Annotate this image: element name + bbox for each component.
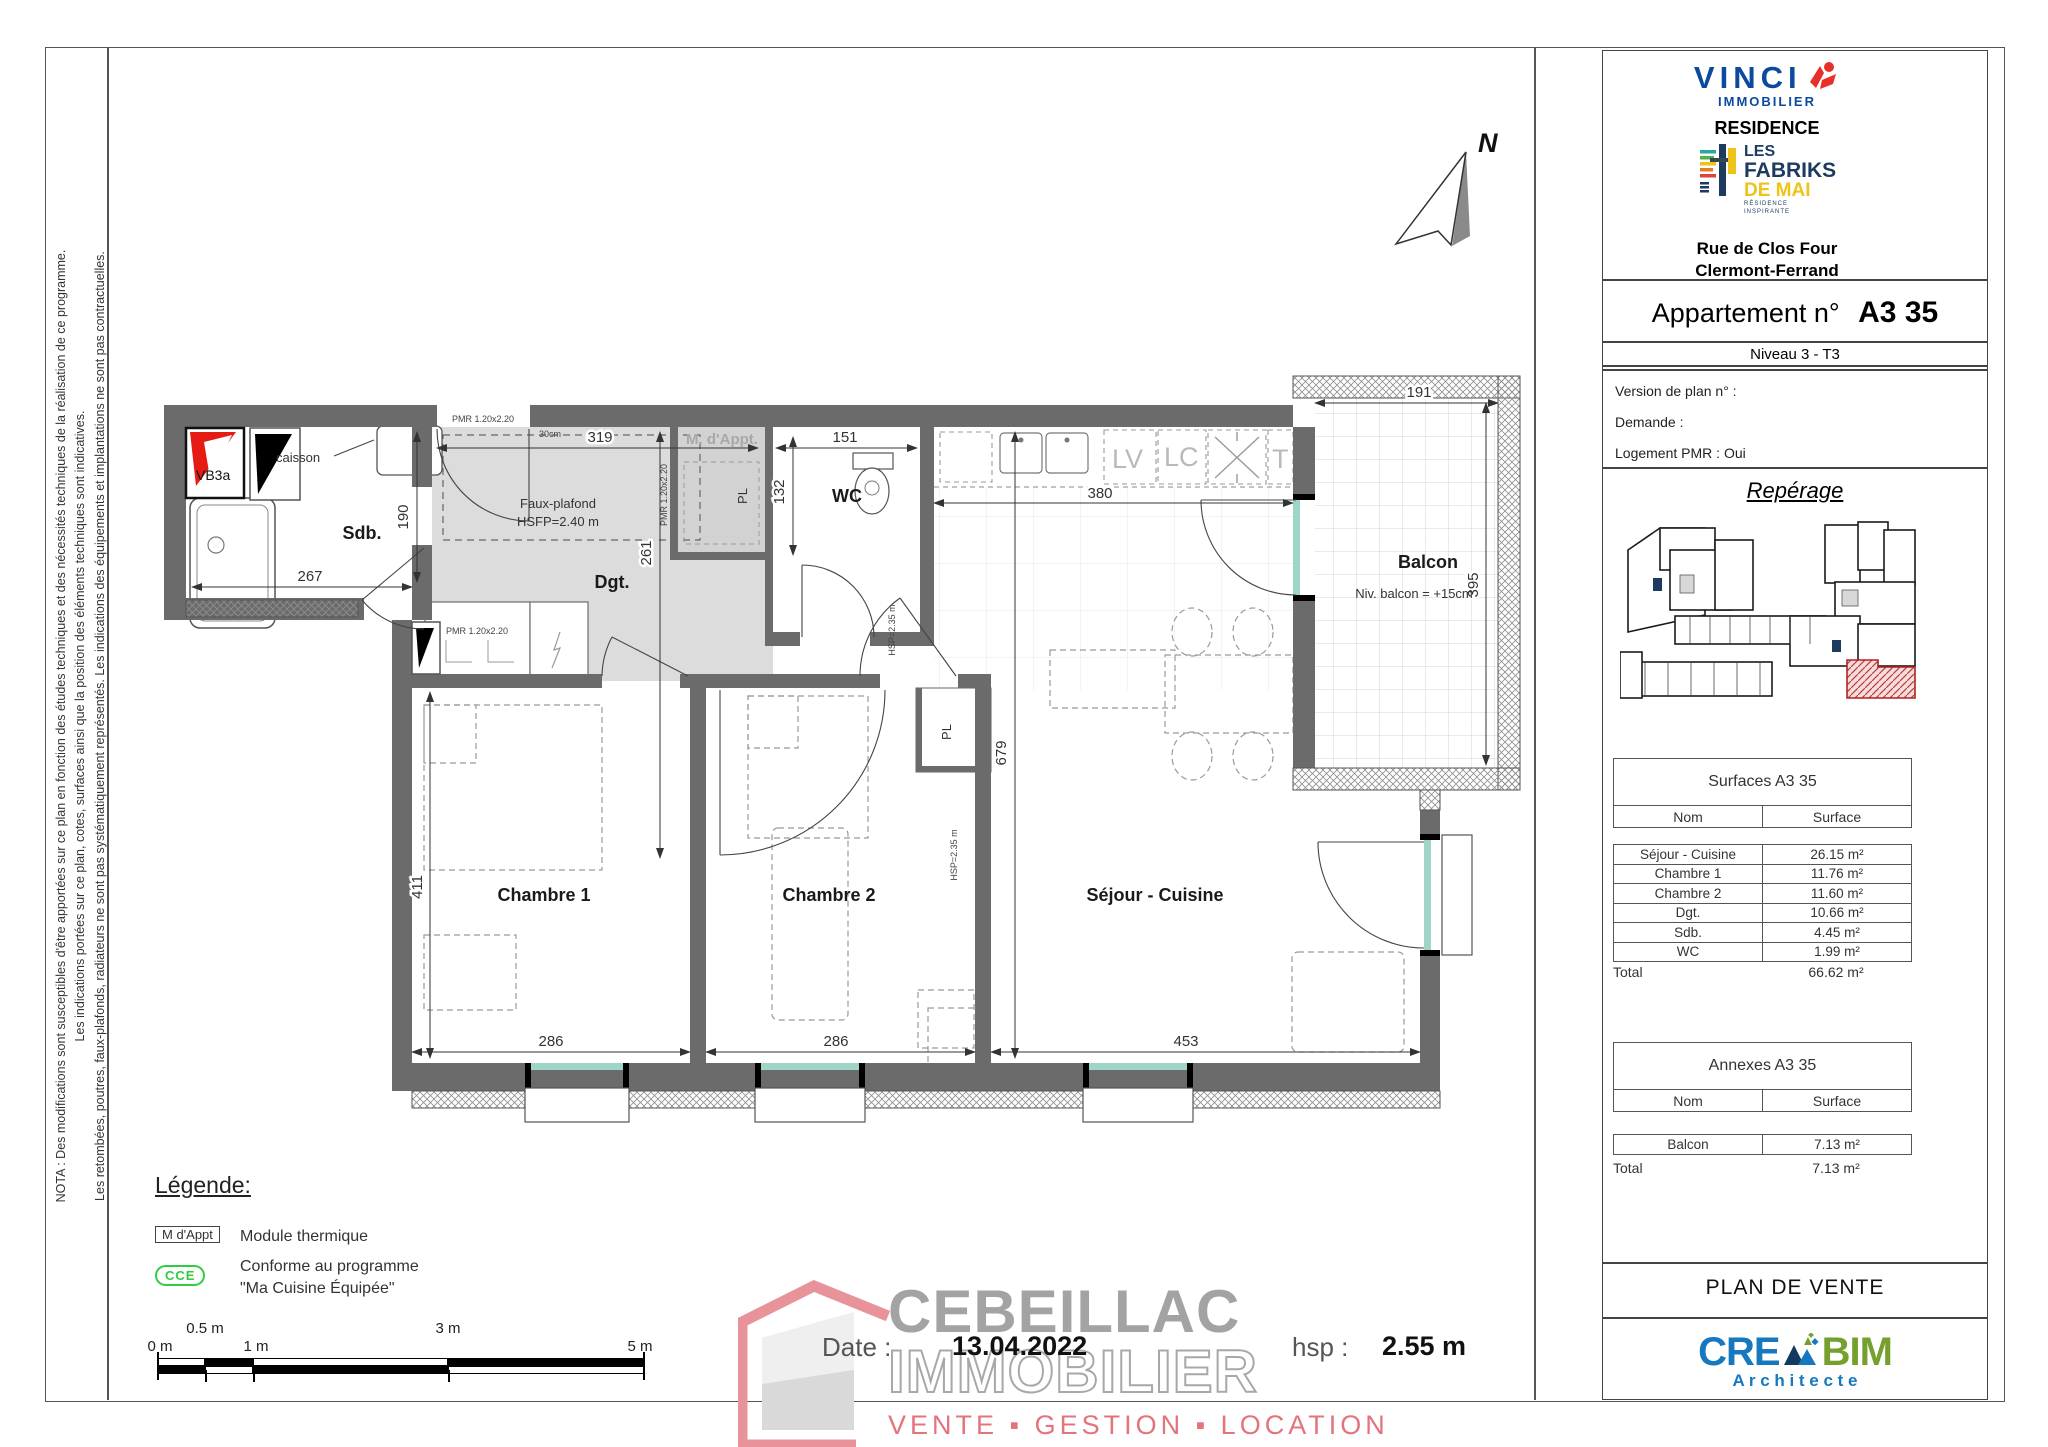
fabriks-sub2: INSPIRANTE — [1744, 208, 1836, 216]
date-value: 13.04.2022 — [952, 1331, 1087, 1362]
reperage-title: Repérage — [1602, 478, 1988, 504]
surfaces-total-value: 66.62 m² — [1762, 964, 1910, 980]
vb3a-label: VB3a — [196, 467, 230, 483]
surfaces-table-body: Séjour - Cuisine26.15 m² Chambre 111.76 … — [1613, 844, 1912, 962]
vinci-sub-label: IMMOBILIER — [1602, 94, 1932, 109]
room-chambre1: Chambre 1 — [497, 885, 590, 905]
cell-nom: Dgt. — [1614, 904, 1763, 923]
table-row: Sdb.4.45 m² — [1614, 923, 1911, 943]
annexes-total-label: Total — [1613, 1160, 1643, 1176]
dim-286b: 286 — [823, 1033, 848, 1050]
dim-151: 151 — [832, 429, 857, 446]
cell-nom: WC — [1614, 943, 1763, 962]
demande-label: Demande : — [1615, 414, 1683, 430]
entry-closets — [425, 602, 588, 681]
note-pmr-module: PMR 1.20x2.20 — [659, 464, 669, 526]
room-chambre2: Chambre 2 — [782, 885, 875, 905]
dim-453: 453 — [1173, 1033, 1198, 1050]
kitchen-counter: LV LC T — [934, 430, 1293, 487]
cell-surface: 11.60 m² — [1763, 884, 1911, 903]
divider — [1602, 1262, 1988, 1264]
residence-label: RESIDENCE — [1602, 118, 1932, 139]
vinci-logo: VINCI IMMOBILIER — [1602, 60, 1932, 109]
scale-0: 0 m — [147, 1338, 172, 1355]
cce-label-line1: Conforme au programme — [240, 1256, 419, 1278]
kitchen-t-label: T — [1272, 444, 1289, 474]
room-balcon: Balcon — [1398, 552, 1458, 572]
level-label: Niveau 3 - T3 — [1602, 346, 1988, 363]
hsp-label: hsp : — [1292, 1332, 1348, 1363]
table-row: Dgt.10.66 m² — [1614, 904, 1911, 924]
table-row: Séjour - Cuisine26.15 m² — [1614, 845, 1911, 865]
cce-symbol-text: CCE — [165, 1268, 195, 1283]
note-30cm: 30cm — [539, 429, 561, 439]
note-fauxplafond-2: HSFP=2.40 m — [517, 514, 599, 529]
fabriks-les: LES — [1744, 144, 1836, 160]
divider — [1602, 279, 1988, 281]
version-label: Version de plan n° : — [1615, 383, 1737, 399]
dim-190: 190 — [395, 504, 412, 529]
room-sdb: Sdb. — [343, 523, 382, 543]
creabim-cre: CRE — [1698, 1330, 1779, 1374]
note-hsp-b: HSP=2.35 m — [949, 829, 959, 880]
dim-380: 380 — [1087, 485, 1112, 502]
module-thermique-label: Module thermique — [240, 1228, 368, 1246]
dim-319: 319 — [587, 429, 612, 446]
fabriks-logo: LES FABRIKS DE MAI RÉSIDENCE INSPIRANTE — [1700, 144, 1900, 217]
cebeillac-tagline: VENTE ▪ GESTION ▪ LOCATION — [888, 1412, 1389, 1439]
cell-surface: 11.76 m² — [1763, 865, 1911, 884]
legend-title: Légende: — [155, 1172, 251, 1199]
cell-nom: Chambre 2 — [1614, 884, 1763, 903]
divider — [1602, 369, 1988, 371]
creabim-sub: A r c h i t e c t e — [1602, 1371, 1988, 1391]
cell-surface: 26.15 m² — [1763, 845, 1911, 864]
cell-surface: 4.45 m² — [1763, 923, 1911, 942]
surfaces-total-label: Total — [1613, 964, 1643, 980]
vinci-symbol-icon — [1806, 60, 1840, 94]
module-symbol-text: M d'Appt — [162, 1227, 213, 1242]
window-wedge-2 — [412, 622, 440, 674]
dim-679: 679 — [993, 740, 1010, 765]
vb3a-box: VB3a — [186, 428, 244, 498]
address-line-1: Rue de Clos Four — [1602, 238, 1932, 260]
dim-286a: 286 — [538, 1033, 563, 1050]
cce-label: Conforme au programme "Ma Cuisine Équipé… — [240, 1256, 419, 1299]
surfaces-title: Surfaces A3 35 — [1614, 759, 1911, 805]
address: Rue de Clos Four Clermont-Ferrand — [1602, 238, 1932, 282]
scale-3: 3 m — [435, 1320, 460, 1337]
note-pmr-door: PMR 1.20x2.20 — [452, 414, 514, 424]
note-niv-balcon: Niv. balcon = +15cm — [1355, 586, 1473, 601]
room-sejour: Séjour - Cuisine — [1086, 885, 1223, 905]
cell-nom: Balcon — [1614, 1135, 1763, 1154]
apartment-label: Appartement n° — [1652, 298, 1840, 328]
annexes-total-value: 7.13 m² — [1762, 1160, 1910, 1176]
annexes-table-body: Balcon7.13 m² — [1613, 1134, 1912, 1155]
plan-de-vente-label: PLAN DE VENTE — [1602, 1276, 1988, 1300]
table-row: Chambre 211.60 m² — [1614, 884, 1911, 904]
cell-nom: Séjour - Cuisine — [1614, 845, 1763, 864]
module-thermique-symbol: M d'Appt — [155, 1226, 220, 1243]
surfaces-table-header: Surfaces A3 35 Nom Surface — [1613, 758, 1912, 828]
pl-label-a: PL — [735, 488, 750, 504]
hsp-value: 2.55 m — [1382, 1331, 1466, 1362]
table-row: WC1.99 m² — [1614, 943, 1911, 962]
apartment-number: A3 35 — [1858, 296, 1938, 329]
surfaces-col-nom: Nom — [1614, 806, 1763, 827]
dim-267: 267 — [297, 568, 322, 585]
cell-nom: Sdb. — [1614, 923, 1763, 942]
cell-nom: Chambre 1 — [1614, 865, 1763, 884]
date-label: Date : — [822, 1332, 891, 1363]
room-wc: WC — [832, 486, 862, 506]
creabim-logo: CRE BIM A r c h i t e c t e — [1602, 1330, 1988, 1391]
annexes-col-nom: Nom — [1614, 1090, 1763, 1111]
creabim-bim: BIM — [1822, 1330, 1892, 1374]
divider — [1602, 1317, 1988, 1319]
dim-132: 132 — [771, 479, 788, 504]
kitchen-floor-grid — [934, 487, 1293, 690]
room-dgt: Dgt. — [595, 572, 630, 592]
surfaces-col-surface: Surface — [1763, 806, 1911, 827]
creabim-triangles-icon — [1780, 1333, 1822, 1371]
divider — [1602, 365, 1988, 367]
fabriks-sub1: RÉSIDENCE — [1744, 200, 1836, 208]
fabriks-icon — [1700, 144, 1738, 214]
fabriks-fabriks: FABRIKS — [1744, 160, 1836, 181]
reperage-map — [1620, 520, 1980, 745]
vinci-wordmark: VINCI — [1694, 60, 1802, 95]
note-fauxplafond-1: Faux-plafond — [520, 496, 596, 511]
cebeillac-house-icon — [738, 1280, 890, 1447]
annexes-table-header: Annexes A3 35 Nom Surface — [1613, 1042, 1912, 1112]
note-pmr-closet: PMR 1.20x2.20 — [446, 626, 508, 636]
divider — [1602, 341, 1988, 343]
divider — [1602, 467, 1988, 469]
cell-surface: 10.66 m² — [1763, 904, 1911, 923]
scale-5: 5 m — [627, 1338, 652, 1355]
north-arrow-icon: N — [1396, 128, 1498, 246]
cce-label-line2: "Ma Cuisine Équipée" — [240, 1278, 419, 1300]
annexes-title: Annexes A3 35 — [1614, 1043, 1911, 1089]
room-module: M. d'Appt. — [686, 431, 758, 448]
note-hsp-a: HSP=2.35 m — [887, 604, 897, 655]
apartment-title: Appartement n° A3 35 — [1602, 296, 1988, 330]
cell-surface: 1.99 m² — [1763, 943, 1911, 962]
dim-261: 261 — [638, 540, 655, 565]
table-row: Balcon7.13 m² — [1614, 1135, 1911, 1154]
cell-surface: 7.13 m² — [1763, 1135, 1911, 1154]
kitchen-lv-label: LV — [1112, 444, 1143, 474]
fabriks-demai: DE MAI — [1744, 181, 1836, 200]
pl-label-b: PL — [939, 724, 954, 740]
annexes-col-surface: Surface — [1763, 1090, 1911, 1111]
north-label: N — [1478, 128, 1498, 158]
note-caisson: caisson — [276, 450, 320, 465]
dim-411: 411 — [409, 875, 426, 899]
kitchen-lc-label: LC — [1164, 442, 1199, 472]
table-row: Chambre 111.76 m² — [1614, 865, 1911, 885]
cce-symbol: CCE — [155, 1265, 205, 1286]
scale-1: 1 m — [243, 1338, 268, 1355]
dim-191: 191 — [1406, 384, 1431, 401]
pmr-label: Logement PMR : Oui — [1615, 445, 1746, 461]
scale-05: 0.5 m — [186, 1320, 224, 1337]
